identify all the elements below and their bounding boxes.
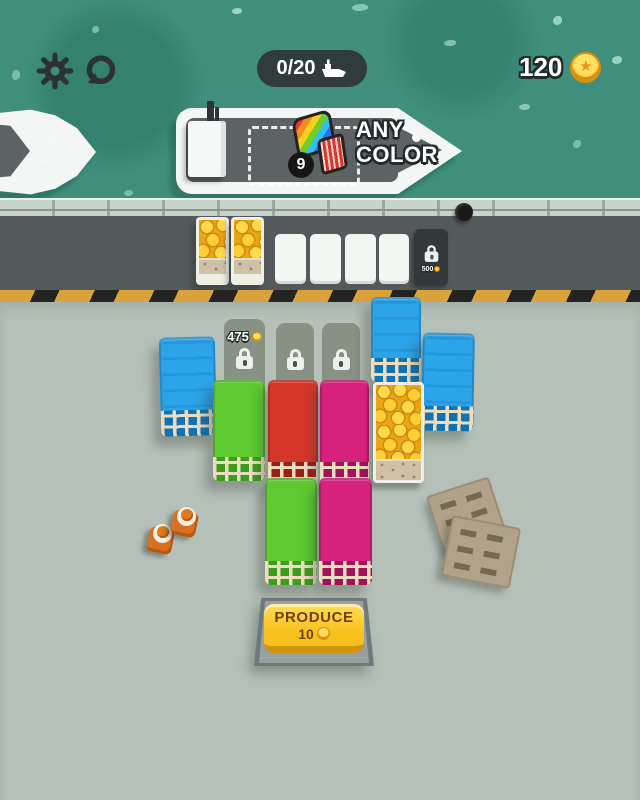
- lock-icon: [287, 349, 304, 370]
- coin-pallet[interactable]: [231, 217, 264, 285]
- order-count-badge: 9: [288, 152, 314, 178]
- dock-slot: [379, 234, 409, 284]
- coin-counter-value: 120: [519, 52, 562, 83]
- settings-button[interactable]: [36, 52, 74, 90]
- produce-area: PRODUCE 10: [254, 598, 374, 666]
- coin-counter: 120 ★: [519, 52, 601, 83]
- ship-cabin: [188, 121, 226, 177]
- ship-left: [0, 106, 96, 198]
- traffic-cone: [170, 503, 206, 539]
- porthole: [46, 136, 55, 145]
- coin-icon: [317, 627, 330, 640]
- container-blue[interactable]: [159, 336, 218, 436]
- restart-button[interactable]: [84, 52, 122, 90]
- container-magenta[interactable]: [319, 478, 372, 585]
- lock-icon: [424, 245, 438, 262]
- order-label-line1: ANY: [356, 117, 438, 142]
- ship-icon: [321, 59, 347, 78]
- dock-locked-slot[interactable]: 500: [414, 229, 448, 286]
- restart-icon: [84, 53, 122, 89]
- bollard: [455, 203, 473, 221]
- coin-icon: [434, 266, 440, 272]
- lock-icon: [333, 349, 350, 370]
- order-label: ANY COLOR: [356, 117, 438, 167]
- seawall: [0, 198, 640, 216]
- coin-pallet[interactable]: [196, 217, 229, 285]
- wooden-pallet: [441, 515, 522, 589]
- hazard-stripe: [0, 290, 640, 302]
- dock-slot-price: 500: [422, 266, 441, 273]
- lock-icon: [236, 348, 253, 369]
- dock-slot: [275, 234, 306, 284]
- porthole: [42, 156, 51, 165]
- container-green[interactable]: [213, 380, 265, 481]
- order-label-line2: COLOR: [356, 142, 438, 167]
- container-red[interactable]: [268, 380, 318, 486]
- gear-icon: [36, 52, 74, 90]
- ship-counter: 0/20: [257, 50, 367, 87]
- coin-icon: [252, 332, 262, 342]
- container-green[interactable]: [265, 478, 317, 585]
- container-blue[interactable]: [371, 297, 421, 382]
- ship-counter-value: 0/20: [277, 57, 316, 80]
- rainbow-container-icon: 9: [290, 112, 350, 178]
- dock-slot: [345, 234, 376, 284]
- coin-icon: ★: [570, 52, 601, 83]
- coin-crate[interactable]: [373, 382, 424, 483]
- produce-cost: 10: [298, 626, 314, 642]
- produce-button[interactable]: PRODUCE 10: [264, 604, 364, 653]
- dock-slot: [310, 234, 341, 284]
- container-blue[interactable]: [421, 333, 475, 432]
- container-magenta[interactable]: [320, 380, 369, 486]
- game-screen: 9 ANY COLOR: [0, 0, 640, 800]
- yard-slot-price: 475: [227, 329, 262, 344]
- star-icon: ★: [579, 59, 592, 74]
- produce-label: PRODUCE: [274, 609, 353, 626]
